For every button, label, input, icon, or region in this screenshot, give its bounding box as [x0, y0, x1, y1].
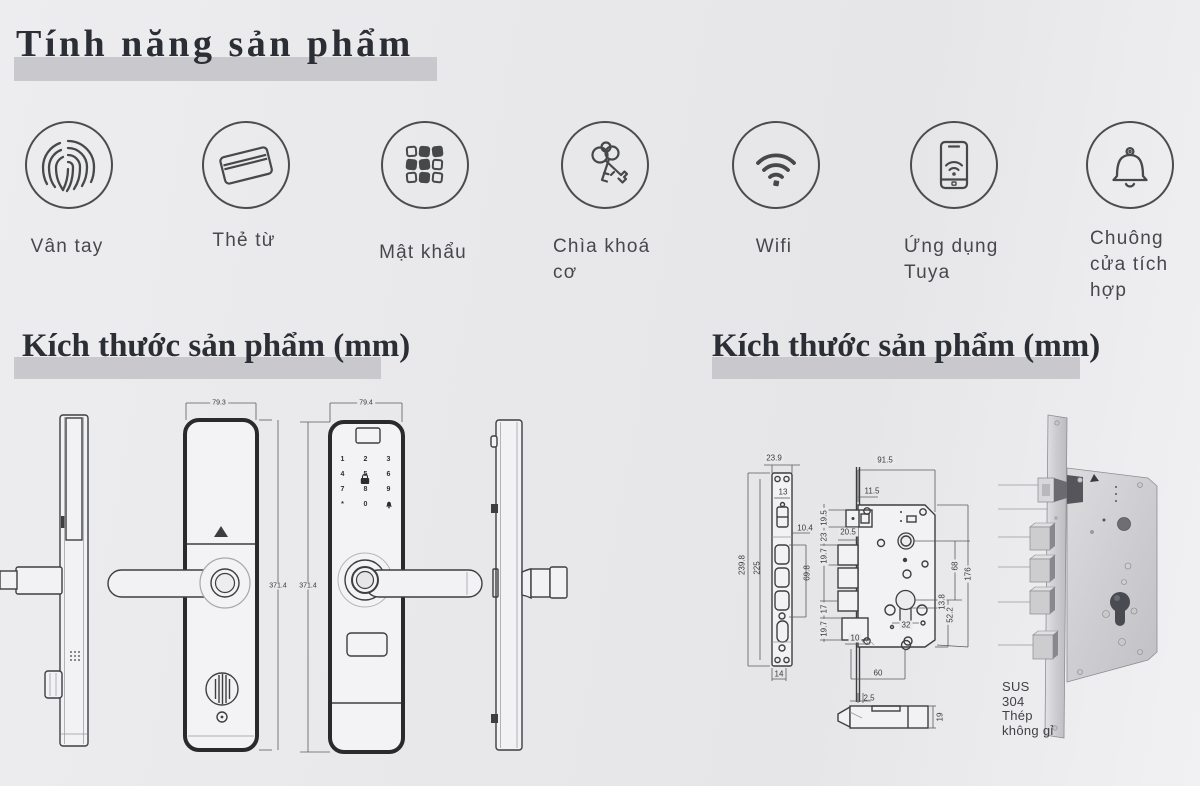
feature-circle — [202, 121, 290, 209]
key-7: 7 — [331, 482, 354, 497]
dim-bolt-width: 20.5 — [838, 528, 858, 537]
dim-bottom-span: 60 — [872, 669, 885, 678]
wifi-icon — [734, 123, 818, 207]
dim-bolt-offset: 10.4 — [797, 524, 813, 533]
feature-label-wifi: Wifi — [718, 234, 830, 260]
feature-circle — [910, 121, 998, 209]
feature-circle — [1086, 121, 1174, 209]
dim-faceplate-width: 23.9 — [764, 454, 784, 463]
dim-seg-23: 23 — [820, 531, 829, 544]
feature-tuya-app — [910, 121, 998, 209]
dim-back-height: 371.4 — [297, 583, 319, 590]
side-view-exterior — [0, 415, 88, 746]
material-note: SUS 304 Thép không gỉ — [1002, 680, 1054, 738]
feature-label-doorbell: Chuông cửa tích hợp — [1090, 226, 1190, 304]
material-line: 304 — [1002, 695, 1054, 710]
page-title: Tính năng sản phẩm — [16, 22, 414, 66]
dim-seg-17: 17 — [820, 603, 829, 616]
dim-front-width: 79.3 — [210, 400, 228, 407]
dim-faceplate-screw-span: 225 — [753, 561, 762, 574]
dim-seg-19-7-a: 19.7 — [820, 546, 829, 566]
side-view-interior — [491, 420, 567, 750]
feature-label-card: Thẻ từ — [188, 228, 300, 254]
feature-circle — [732, 121, 820, 209]
phone-app-icon — [912, 123, 996, 207]
latch-profile-view — [838, 706, 936, 728]
feature-fingerprint — [25, 121, 113, 209]
key-3: 3 — [377, 452, 400, 467]
feature-wifi — [732, 121, 820, 209]
feature-mechanical-key — [561, 121, 649, 209]
key-4: 4 — [331, 467, 354, 482]
dim-faceplate-hole-width: 13 — [779, 488, 788, 497]
dim-bolt-span: 69.8 — [803, 565, 812, 581]
lock-key-icon — [360, 472, 370, 490]
key-9: 9 — [377, 482, 400, 497]
key-star: * — [331, 497, 354, 512]
dim-latch-profile-height: 19 — [936, 711, 945, 724]
right-section-title: Kích thước sản phẩm (mm) — [712, 328, 1100, 365]
dim-seg-19-5: 19.5 — [820, 508, 829, 528]
dim-latch-lip: 2.5 — [863, 694, 874, 703]
mortise-lock-drawing — [720, 390, 1200, 786]
dim-front-height: 371.4 — [267, 583, 289, 590]
smartlock-infographic: Tính năng sản phẩm — [0, 0, 1200, 786]
dim-seg-10: 10 — [849, 634, 862, 643]
material-line: không gỉ — [1002, 724, 1054, 739]
dim-seg-19-7-b: 19.7 — [820, 619, 829, 639]
dim-cyl-bottom: 52.2 — [946, 605, 955, 625]
key-1: 1 — [331, 452, 354, 467]
feature-label-mechanical-key: Chìa khoá cơ — [553, 234, 669, 286]
dim-latch-depth: 11.5 — [865, 487, 880, 496]
material-line: SUS — [1002, 680, 1054, 695]
dim-spindle-to-cylinder: 68 — [951, 560, 960, 573]
feature-circle — [381, 121, 469, 209]
left-section-title: Kích thước sản phẩm (mm) — [22, 328, 410, 365]
front-view-exterior — [108, 420, 257, 750]
feature-doorbell — [1086, 121, 1174, 209]
key-6: 6 — [377, 467, 400, 482]
keys-icon — [563, 123, 647, 207]
material-line: Thép — [1002, 709, 1054, 724]
dim-faceplate-height: 239.8 — [738, 555, 747, 575]
keypad-icon — [383, 123, 467, 207]
feature-label-fingerprint: Vân tay — [11, 234, 123, 260]
doorbell-icon — [1088, 123, 1172, 207]
lock-body-view — [820, 467, 970, 703]
dim-back-width: 79.4 — [357, 400, 375, 407]
key-2: 2 — [354, 452, 377, 467]
dim-cylinder-screw-span: 32 — [900, 621, 913, 630]
feature-password — [381, 121, 469, 209]
deadbolt-3d — [1030, 523, 1058, 659]
feature-circle — [561, 121, 649, 209]
dim-body-width: 91.5 — [875, 456, 895, 465]
bell-key-icon — [377, 497, 400, 512]
feature-label-password: Mật khẩu — [367, 240, 479, 266]
key-0: 0 — [354, 497, 377, 512]
feature-card — [202, 121, 290, 209]
feature-label-tuya-app: Ứng dụng Tuya — [904, 234, 1020, 286]
fingerprint-icon — [27, 123, 111, 207]
dim-faceplate-bottom-width: 14 — [775, 670, 784, 679]
card-icon — [204, 123, 288, 207]
dim-body-height: 176 — [964, 565, 973, 582]
feature-circle — [25, 121, 113, 209]
